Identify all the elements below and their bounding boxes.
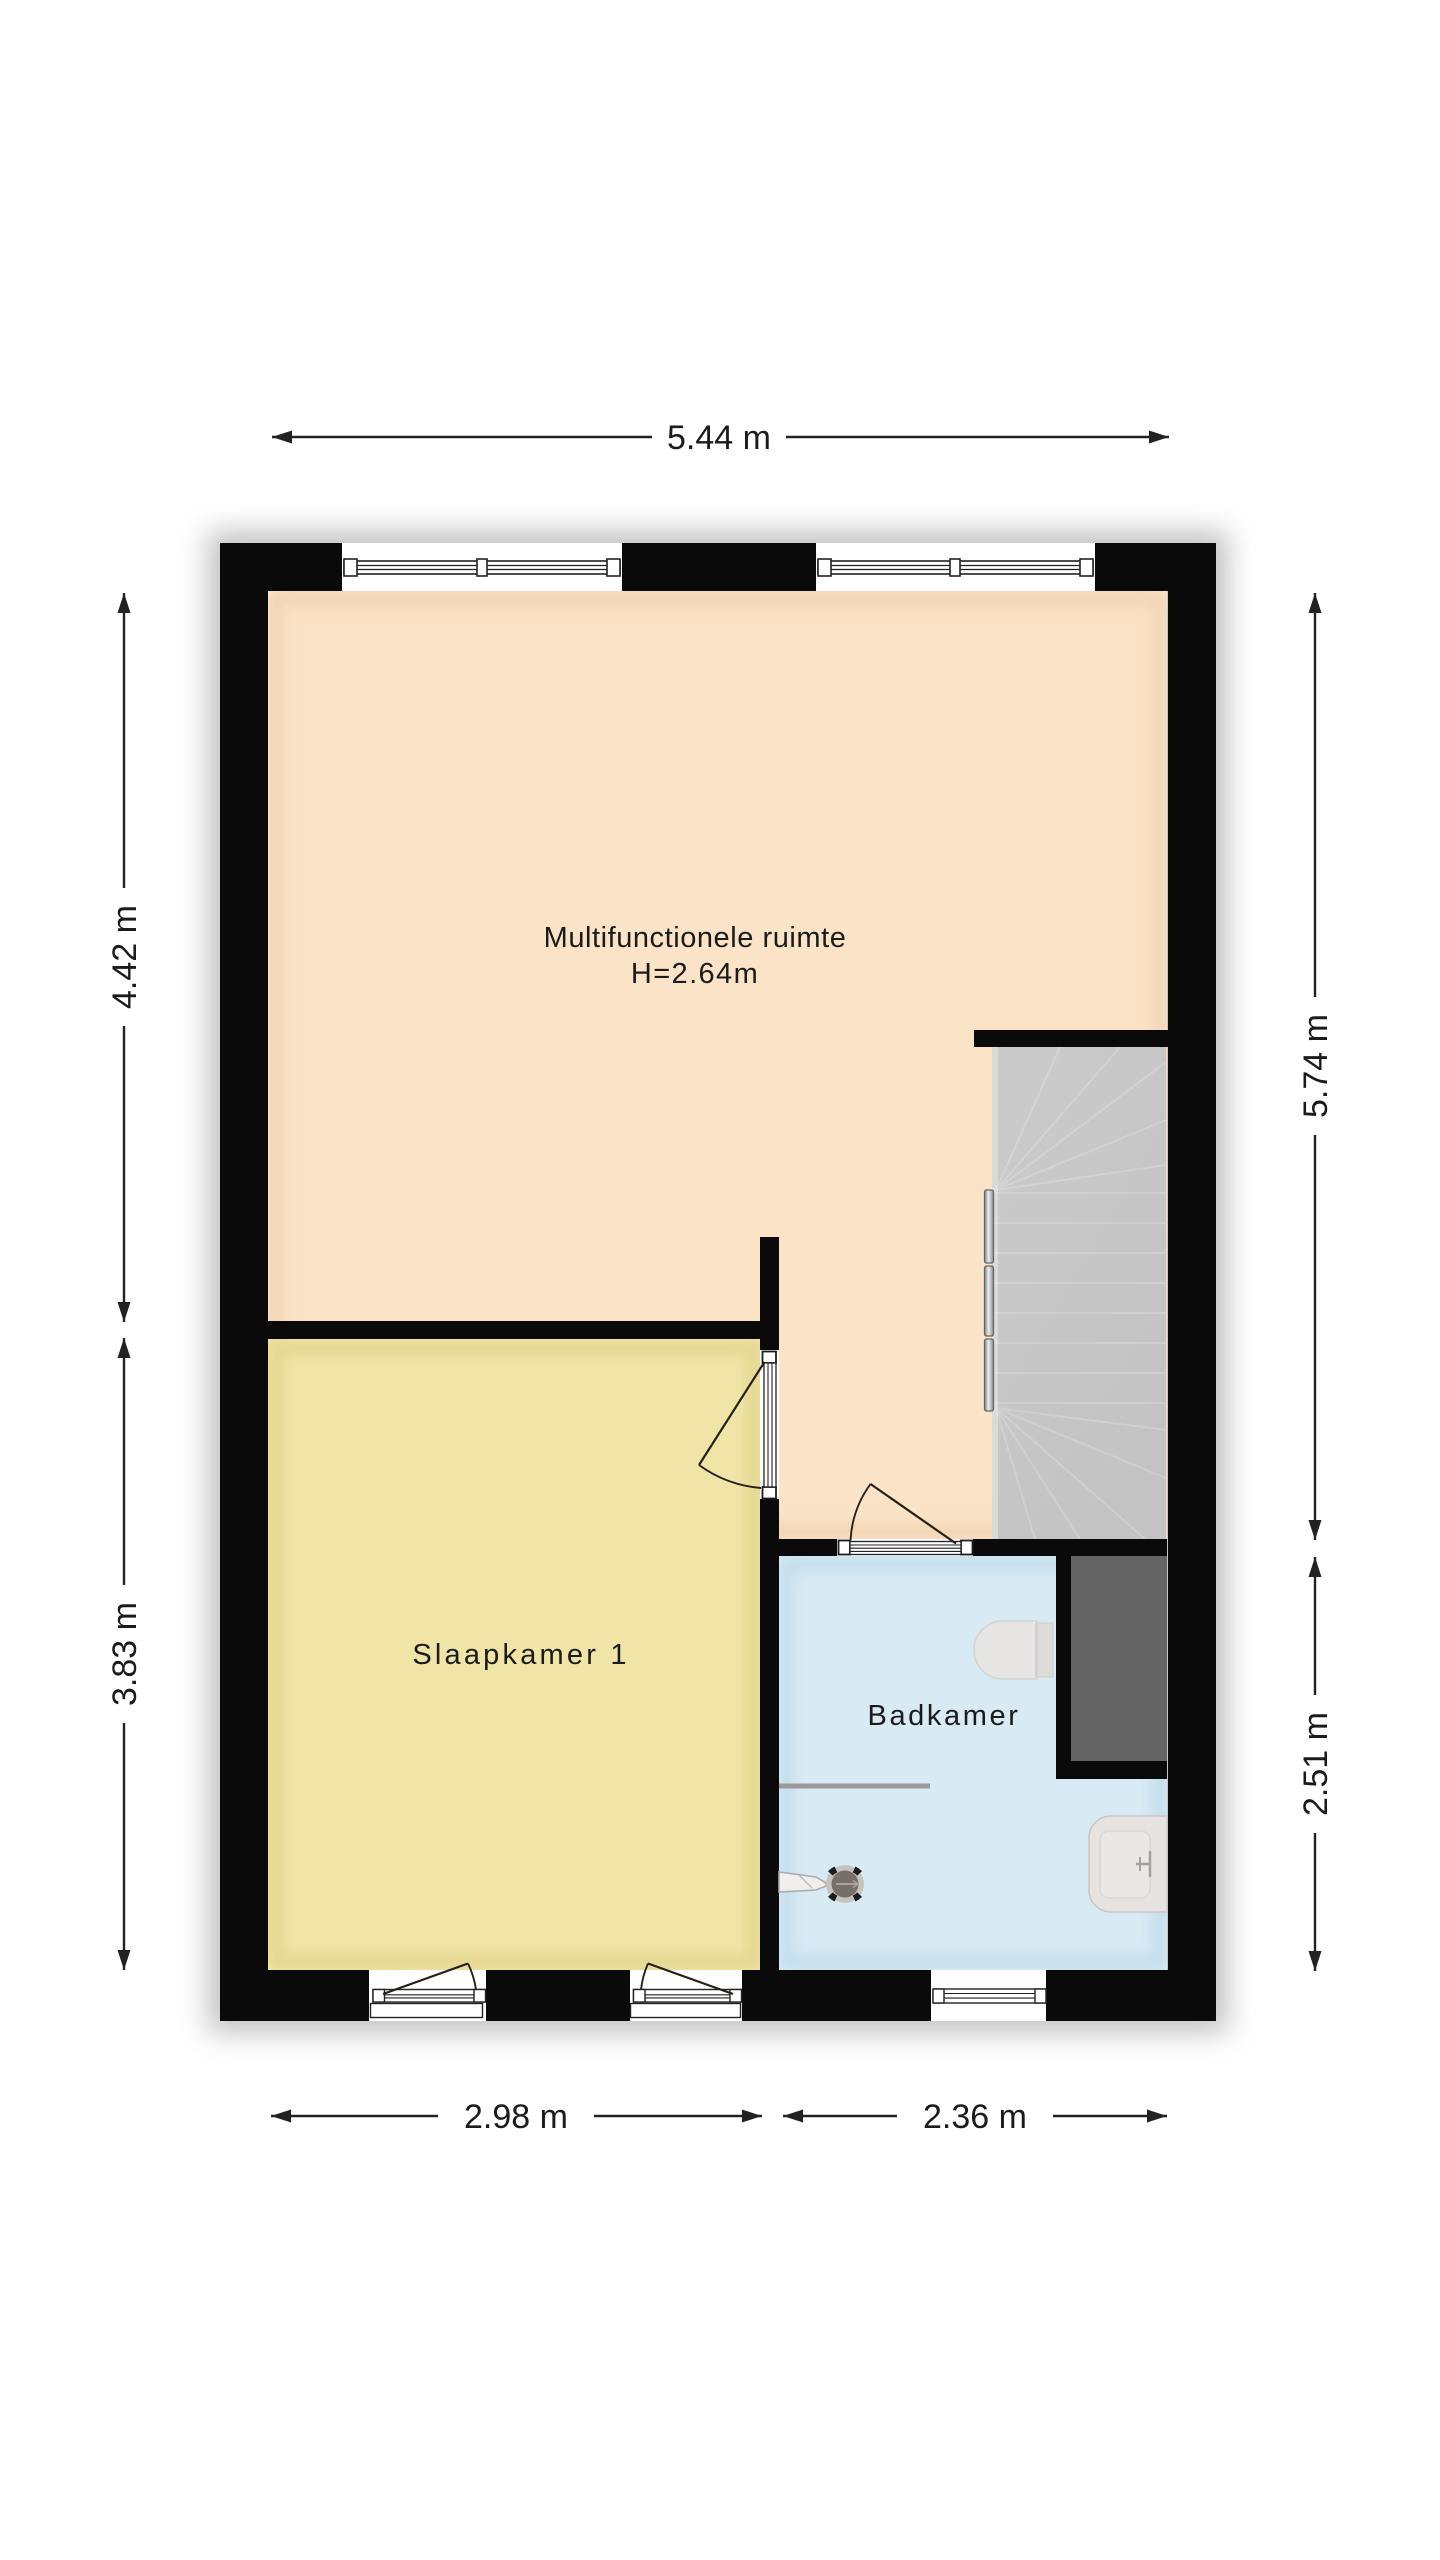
svg-text:2.98 m: 2.98 m <box>464 2098 568 2136</box>
svg-text:3.83 m: 3.83 m <box>106 1602 144 1706</box>
svg-text:5.44 m: 5.44 m <box>667 419 771 457</box>
svg-text:4.42 m: 4.42 m <box>106 905 144 1009</box>
svg-text:5.74 m: 5.74 m <box>1297 1014 1335 1118</box>
svg-text:2.51 m: 2.51 m <box>1297 1712 1335 1816</box>
svg-text:Multifunctionele ruimte: Multifunctionele ruimte <box>544 922 847 954</box>
svg-text:Badkamer: Badkamer <box>868 1700 1021 1732</box>
svg-text:H=2.64m: H=2.64m <box>631 958 759 990</box>
svg-text:Slaapkamer 1: Slaapkamer 1 <box>412 1639 629 1671</box>
svg-text:2.36 m: 2.36 m <box>923 2098 1027 2136</box>
